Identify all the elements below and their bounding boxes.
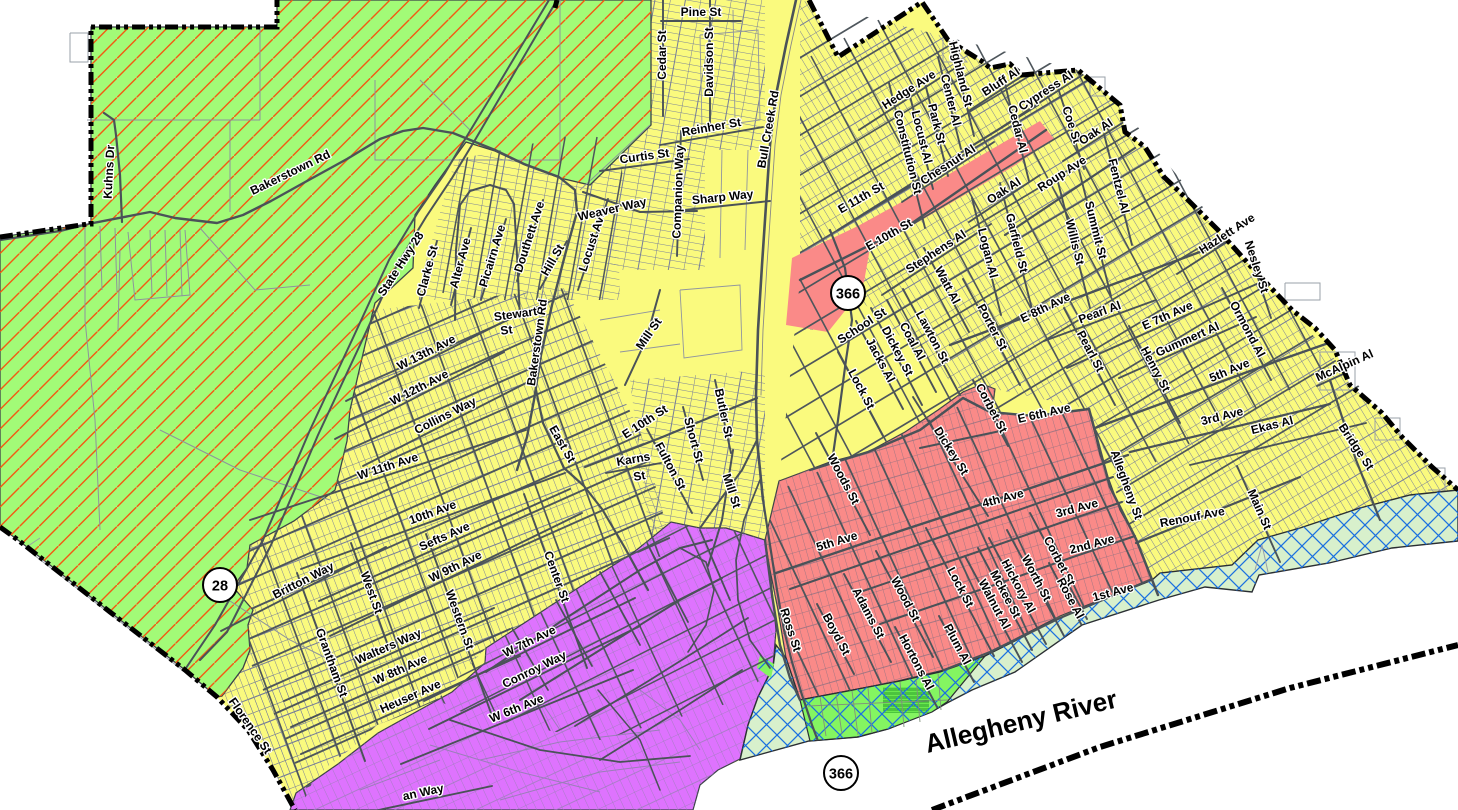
- svg-text:Pine St: Pine St: [681, 5, 722, 19]
- svg-text:Davidson St: Davidson St: [702, 27, 716, 96]
- svg-text:Cedar St: Cedar St: [655, 30, 669, 79]
- svg-text:St: St: [500, 322, 514, 338]
- svg-text:St: St: [632, 468, 646, 484]
- svg-text:366: 366: [829, 767, 853, 783]
- svg-text:Kuhns Dr: Kuhns Dr: [101, 144, 118, 199]
- svg-text:366: 366: [836, 287, 860, 303]
- svg-text:28: 28: [212, 579, 228, 595]
